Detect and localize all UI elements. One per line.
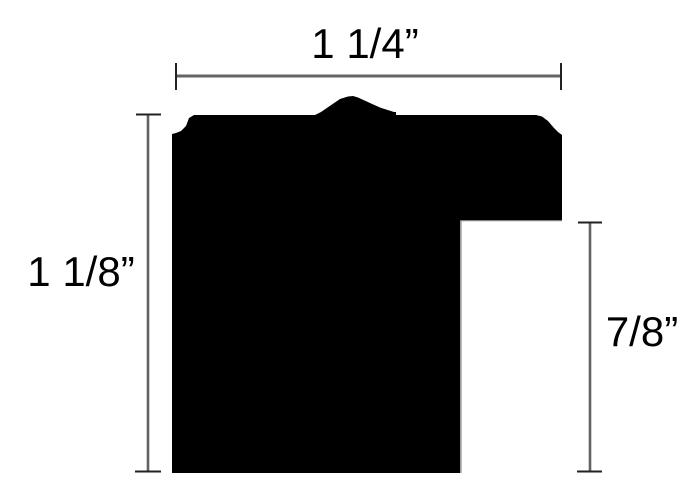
rabbet-notch-edge-hairline <box>461 221 562 473</box>
dimension-top-label: 1 1/4” <box>311 20 418 67</box>
dimension-right-label: 7/8” <box>606 308 678 355</box>
moulding-profile-diagram: 1 1/4” 1 1/8” 7/8” <box>0 0 700 500</box>
dimension-right-height: 7/8” <box>577 222 678 472</box>
dimension-left-label: 1 1/8” <box>27 248 134 295</box>
diagram-svg: 1 1/4” 1 1/8” 7/8” <box>0 0 700 500</box>
moulding-profile-shape <box>172 96 562 473</box>
dimension-left-height: 1 1/8” <box>27 114 161 472</box>
dimension-top-width: 1 1/4” <box>176 20 561 90</box>
